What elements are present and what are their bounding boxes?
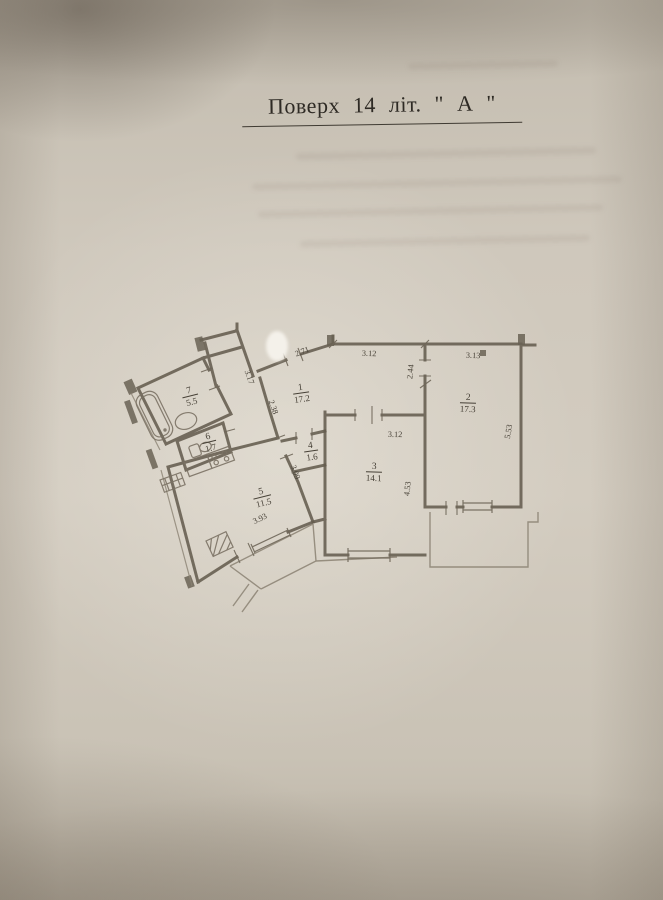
dim-room3-top: 3.12 — [388, 430, 403, 439]
windows — [251, 500, 492, 562]
room-label-7: 7 5.5 — [180, 384, 201, 408]
balcony-right-outline — [430, 512, 538, 567]
pilaster — [146, 449, 158, 470]
pilaster — [480, 350, 486, 356]
dim-room2-top: 3.13 — [466, 351, 481, 361]
walls-right-wing — [313, 336, 535, 555]
room-label-5: 5 11.5 — [251, 485, 274, 510]
room-6-area: 1.7 — [204, 441, 218, 454]
dim-hall-top: 3.12 — [362, 349, 377, 359]
room2-window — [463, 500, 492, 513]
dim-entry-side: 3.17 — [243, 369, 256, 386]
room2-door-ticks — [419, 360, 431, 376]
kitchen-window — [251, 528, 291, 553]
dim-hall-room2: 2.44 — [405, 363, 416, 379]
door-marks — [201, 340, 457, 563]
room-label-4: 4 1.6 — [303, 440, 320, 463]
outer-walls — [313, 336, 535, 555]
room-4-number: 4 — [307, 441, 313, 452]
dim-inner-upper: 2.38 — [267, 399, 280, 416]
room-label-2: 2 17.3 — [460, 393, 477, 415]
room-7-area: 5.5 — [185, 395, 199, 408]
room-2-number: 2 — [466, 393, 471, 403]
dim-room2-side: 5.53 — [503, 424, 514, 440]
room-label-6: 6 1.7 — [200, 431, 219, 455]
hole-punch-spot — [266, 331, 288, 361]
room-label-1: 1 17.2 — [292, 382, 311, 405]
room-1-number: 1 — [297, 383, 303, 394]
pilaster — [518, 334, 525, 345]
room-6-number: 6 — [205, 432, 212, 443]
balconies — [230, 512, 538, 612]
bathtub-icon — [133, 388, 176, 443]
walls-left-wing — [138, 324, 333, 582]
room-7-number: 7 — [186, 386, 193, 397]
room2-balcony-door-ticks — [446, 501, 457, 515]
room3-door-ticks — [355, 406, 382, 424]
photographed-floorplan-page: Поверх 14 літ. " А " — [0, 0, 663, 900]
dim-inner-lower: 3.09 — [289, 464, 302, 481]
entry-and-wet-rooms-walls — [138, 324, 333, 582]
room3-window — [348, 548, 390, 562]
room-1-area: 17.2 — [293, 393, 310, 405]
dim-kitchen-bottom: 3.93 — [251, 512, 268, 526]
dim-entry: 2.71 — [294, 345, 311, 359]
room-2-area: 17.3 — [460, 404, 477, 415]
room-4-area: 1.6 — [306, 451, 319, 463]
room-3-number: 3 — [372, 462, 377, 472]
kitchen-balcony-door-ticks — [234, 543, 254, 563]
room-5-number: 5 — [258, 487, 265, 498]
drain-dot — [164, 429, 166, 431]
outer-wall-face — [131, 393, 192, 586]
dimension-ticks — [329, 340, 431, 388]
room-label-3: 3 14.1 — [366, 462, 383, 484]
floorplan-drawing: 2.71 3.17 3.12 2.44 3.13 5.53 3.12 4.53 … — [0, 0, 663, 900]
pilaster — [123, 379, 137, 395]
bath-door-ticks — [201, 368, 220, 390]
room-3-area: 14.1 — [366, 473, 382, 484]
dim-room3-side: 4.53 — [402, 481, 412, 496]
vent-shaft-icon — [206, 532, 233, 557]
